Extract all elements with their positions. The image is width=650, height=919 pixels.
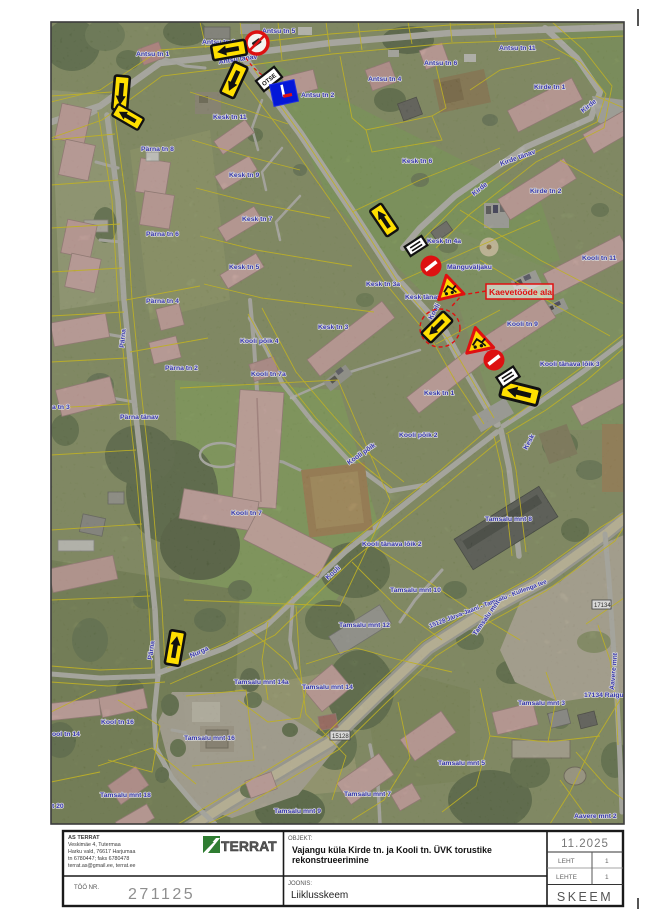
svg-text:LEHT: LEHT [558,858,575,865]
svg-text:1: 1 [605,874,609,881]
svg-text:OBJEKT:: OBJEKT: [288,836,313,842]
svg-text:AS TERRAT: AS TERRAT [68,835,100,841]
svg-text:271125: 271125 [128,886,195,903]
svg-text:11.2025: 11.2025 [561,838,609,850]
svg-text:TÖÖ NR.: TÖÖ NR. [74,884,99,891]
svg-text:rekonstrueerimine: rekonstrueerimine [292,855,369,865]
svg-text:1: 1 [605,858,609,865]
svg-text:Harku vald, 76617 Harjumaa: Harku vald, 76617 Harjumaa [68,849,135,855]
svg-text:SKEEM: SKEEM [557,890,613,904]
svg-text:Vajangu küla Kirde tn. ja Kool: Vajangu küla Kirde tn. ja Kooli tn. ÜVK … [292,845,492,855]
svg-text:JOONIS:: JOONIS: [288,881,312,887]
svg-text:Kaevetööde ala: Kaevetööde ala [489,287,552,297]
svg-text:TERRAT: TERRAT [221,838,277,854]
svg-text:Liiklusskeem: Liiklusskeem [291,890,348,901]
svg-text:terrat.as@gmail.ee, terrat.ee: terrat.as@gmail.ee, terrat.ee [68,863,136,869]
svg-text:Veskimäe 4, Tutermaa: Veskimäe 4, Tutermaa [68,842,121,848]
svg-text:tn 6780447; faks 6780478: tn 6780447; faks 6780478 [68,856,129,862]
svg-text:LEHTE: LEHTE [556,874,578,881]
